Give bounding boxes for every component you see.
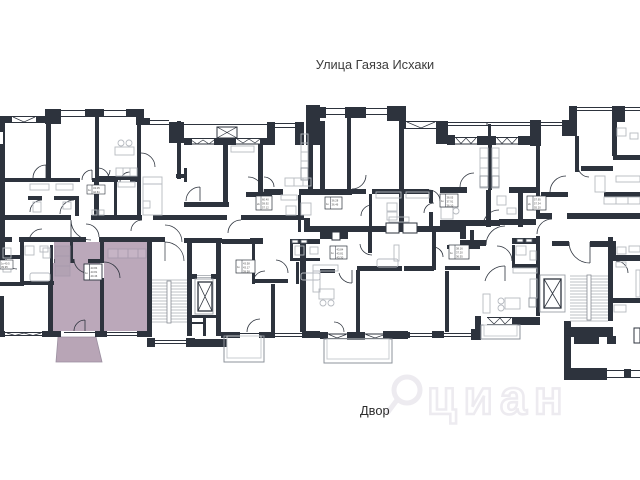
svg-text:39.58: 39.58 — [243, 270, 250, 274]
svg-text:43.84: 43.84 — [91, 266, 98, 270]
svg-text:43.84: 43.84 — [337, 248, 344, 252]
svg-text:43.30: 43.30 — [337, 256, 344, 260]
svg-text:37.20: 37.20 — [456, 251, 463, 255]
svg-text:57.34: 57.34 — [534, 202, 541, 206]
svg-text:57.12: 57.12 — [262, 206, 269, 210]
svg-text:43.17: 43.17 — [243, 266, 250, 270]
svg-text:Улица Гаяза Исхаки: Улица Гаяза Исхаки — [316, 57, 434, 72]
svg-text:42.61: 42.61 — [93, 190, 100, 194]
svg-text:38.16: 38.16 — [456, 247, 463, 251]
svg-text:57.95: 57.95 — [534, 198, 541, 202]
svg-text:59.92: 59.92 — [262, 202, 269, 206]
svg-text:55.20: 55.20 — [534, 206, 541, 210]
svg-text:1к 40.5: 1к 40.5 — [1, 262, 10, 266]
svg-text:36.55: 36.55 — [456, 255, 463, 259]
svg-text:36.28: 36.28 — [332, 199, 339, 203]
svg-text:37.91: 37.91 — [447, 200, 454, 204]
svg-text:38.05: 38.05 — [447, 196, 454, 200]
svg-text:36.46: 36.46 — [332, 203, 339, 207]
svg-text:43.58: 43.58 — [243, 262, 250, 266]
svg-text:36.10: 36.10 — [447, 204, 454, 208]
svg-text:40.46: 40.46 — [91, 274, 98, 278]
svg-text:60.40: 60.40 — [262, 198, 269, 202]
svg-text:циан: циан — [427, 372, 570, 425]
svg-text:43.05: 43.05 — [93, 186, 100, 190]
svg-text:Двор: Двор — [360, 403, 390, 418]
svg-text:39.95: 39.95 — [1, 265, 8, 269]
svg-text:43.81: 43.81 — [91, 270, 98, 274]
svg-text:43.81: 43.81 — [337, 252, 344, 256]
